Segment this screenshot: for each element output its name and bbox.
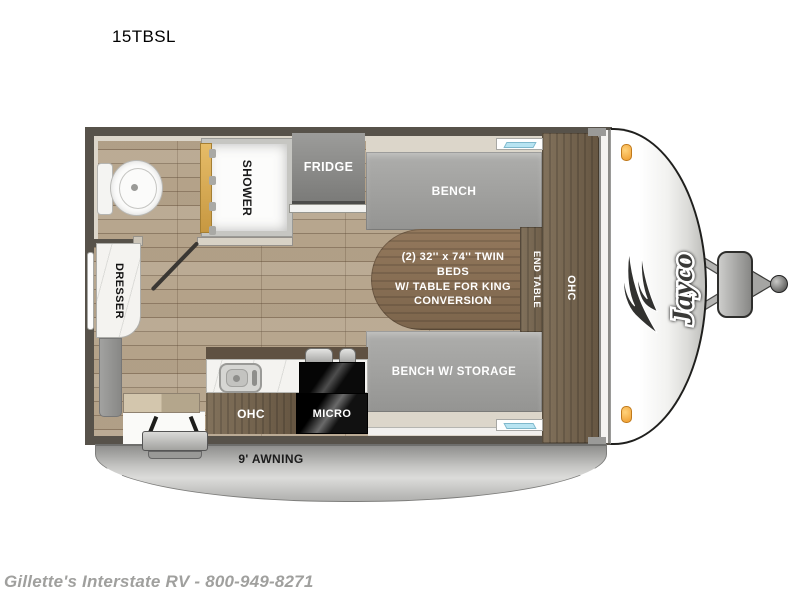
ohc-kitchen-label: OHC xyxy=(237,407,265,421)
twin-bed-table: (2) 32'' x 74'' TWIN BEDS W/ TABLE FOR K… xyxy=(371,229,521,330)
awning-label: 9' AWNING xyxy=(225,452,317,466)
jayco-logo: Jayco xyxy=(621,216,705,362)
hitch-ball xyxy=(771,276,788,293)
fridge: FRIDGE xyxy=(292,133,365,204)
window xyxy=(496,138,543,150)
sink xyxy=(219,363,262,393)
marker-light xyxy=(621,406,632,423)
entry-step xyxy=(142,431,208,451)
window-glass xyxy=(503,423,536,429)
fridge-sill xyxy=(289,204,367,213)
shower-door-hinge xyxy=(209,149,216,158)
microwave: MICRO xyxy=(296,393,368,434)
dresser: DRESSER xyxy=(96,243,141,338)
marker-light xyxy=(621,144,632,161)
entry-door-panel xyxy=(123,393,200,413)
side-window-left xyxy=(87,252,94,330)
bench: BENCH xyxy=(366,152,542,230)
window-glass xyxy=(503,142,536,148)
fridge-label: FRIDGE xyxy=(304,160,354,174)
tongue-jack-box xyxy=(718,252,752,317)
bench-storage-label: BENCH W/ STORAGE xyxy=(392,366,516,378)
faucet xyxy=(252,370,257,386)
dealer-footer: Gillette's Interstate RV - 800-949-8271 xyxy=(4,572,313,592)
overhead-cabinet-side: OHC xyxy=(542,133,599,443)
toilet-bowl-inner xyxy=(119,168,157,209)
wardrobe xyxy=(99,338,122,417)
sink-drain xyxy=(233,375,240,382)
stove xyxy=(299,362,365,396)
floorplan-page: 15TBSL SHOWER xyxy=(0,0,800,600)
shower-door-hinge xyxy=(209,202,216,211)
jayco-bird-icon xyxy=(623,237,659,341)
window xyxy=(496,419,543,431)
entry-step-lower xyxy=(148,451,202,459)
partition-wall xyxy=(197,237,293,246)
jayco-text: Jayco xyxy=(666,253,699,326)
ohc-side-label: OHC xyxy=(565,275,577,301)
hitch-assembly xyxy=(698,243,800,335)
wall-cap-top xyxy=(588,128,606,136)
overhead-cabinet-kitchen: OHC xyxy=(206,393,296,434)
dresser-label: DRESSER xyxy=(113,263,125,319)
toilet-drain xyxy=(131,184,138,191)
bench-with-storage: BENCH W/ STORAGE xyxy=(366,331,542,412)
jayco-wordmark: Jayco xyxy=(659,221,703,357)
shower-door-hinge xyxy=(209,176,216,185)
front-wall xyxy=(599,130,610,443)
shower-door-hinge xyxy=(209,226,216,235)
shower-label: SHOWER xyxy=(240,159,254,215)
bed-table-label: (2) 32'' x 74'' TWIN BEDS W/ TABLE FOR K… xyxy=(371,250,521,309)
model-title: 15TBSL xyxy=(112,27,176,47)
bench-label: BENCH xyxy=(432,184,477,198)
micro-label: MICRO xyxy=(313,408,352,420)
end-table-label: END TABLE xyxy=(531,251,542,308)
